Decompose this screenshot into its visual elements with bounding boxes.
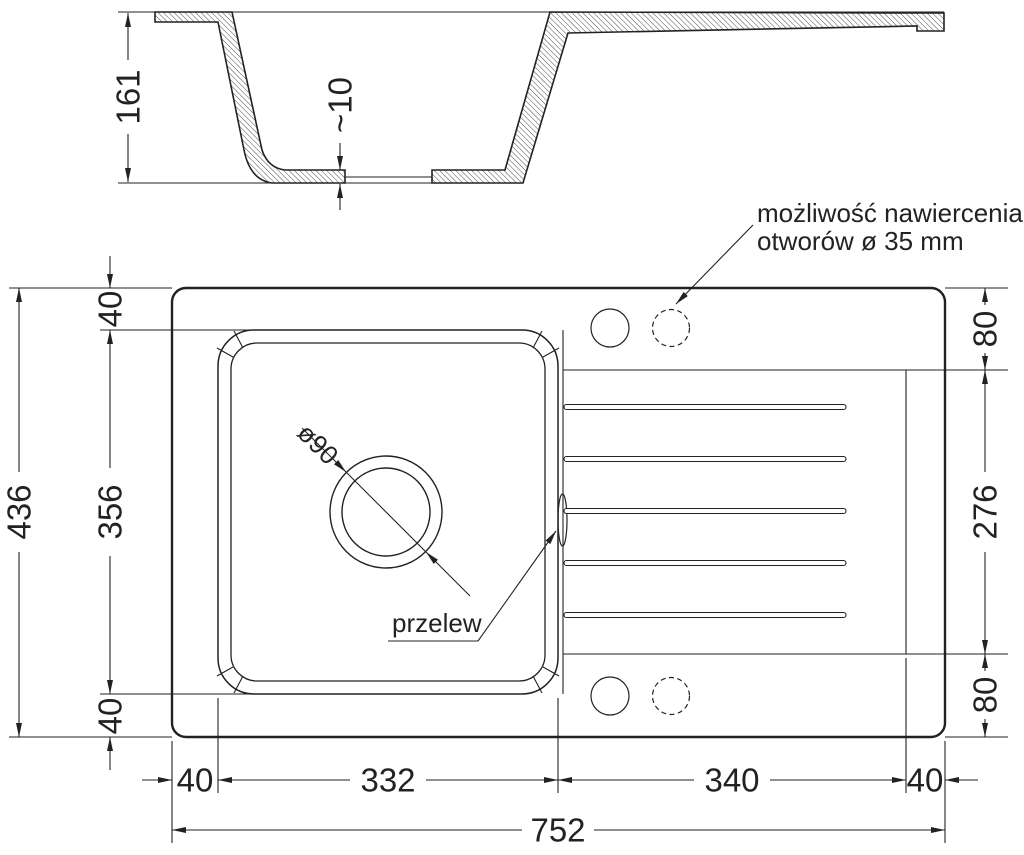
dim-bottom-thickness-label: ~10 [322,77,359,133]
drill-hole-dashed [653,678,690,715]
plan-view [9,225,1008,843]
bowl-corner-facets [217,331,559,693]
dim-overall-length-label: 752 [530,812,585,849]
drainboard-groove [564,457,846,462]
dim-right-bottom-label: 80 [967,677,1004,714]
drainboard-groove [564,509,846,514]
faucet-hole [591,677,629,715]
drill-note-line2: otworów ø 35 mm [757,226,964,256]
drainboard-groove [564,405,846,410]
overflow-label: przelew [392,608,482,638]
drainboard-grooves [564,405,846,618]
drill-note-leader [676,225,753,304]
drill-note-line1: możliwość nawiercenia [757,198,1023,228]
dim-left-middle-label: 356 [92,484,129,539]
faucet-hole [591,309,629,347]
sink-technical-drawing: 161 ~10 [0,0,1024,855]
dim-depth-label: 161 [110,69,147,124]
dim-overall-width-label: 436 [1,484,38,539]
dim-left-top-label: 40 [92,291,129,328]
drainboard-groove [564,561,846,566]
dim-bottom-drainer-label: 340 [704,762,759,799]
dim-bottom-right-edge-label: 40 [907,762,944,799]
bowl-outline [217,330,559,694]
section-shell-right [432,12,944,183]
section-view [118,12,944,210]
dim-right-top-label: 80 [967,311,1004,348]
section-shell-left [155,12,345,183]
dim-right-middle-label: 276 [967,484,1004,539]
drainboard-groove [564,613,846,618]
extension-lines [9,288,1008,843]
drill-hole-dashed [653,310,690,347]
dim-left-bottom-label: 40 [92,698,129,735]
dim-bottom-left-edge-label: 40 [177,762,214,799]
dim-bottom-bowl-label: 332 [360,762,415,799]
drawing-svg: 161 ~10 [0,0,1024,855]
